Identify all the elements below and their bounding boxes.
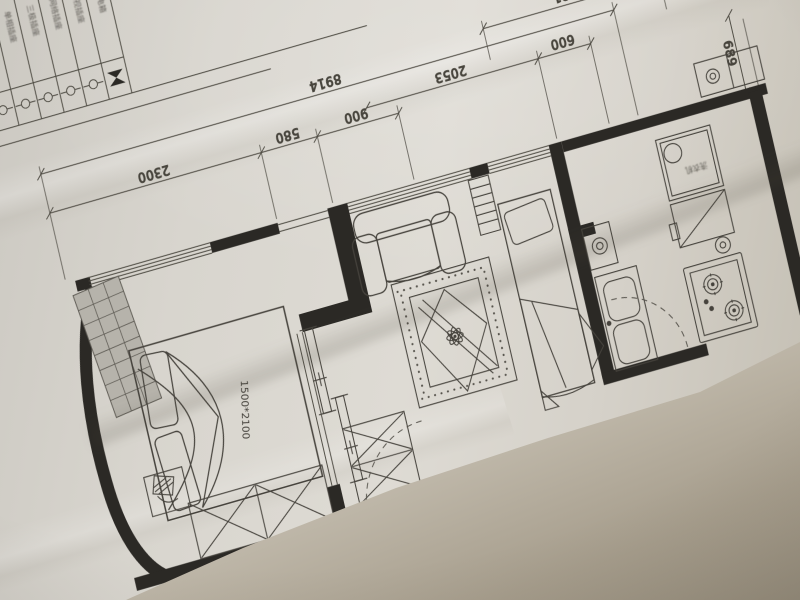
dimension-annotations: 8914 2300 580 900 2053 600 1981 689 <box>28 0 761 296</box>
legend-item-label: 网络插座 <box>48 0 65 31</box>
washing-machine-label: 洗衣机 <box>684 160 708 176</box>
balcony-door <box>278 211 329 232</box>
pillow <box>503 197 554 246</box>
legend-item-label: 三极插座 <box>25 3 42 37</box>
dim-580: 580 <box>274 124 301 146</box>
flower-motif <box>445 325 465 347</box>
legend-item-label: 单相插座 <box>3 10 20 44</box>
dim-overall: 8914 <box>308 71 343 95</box>
burner-icon <box>722 297 747 324</box>
floor-plan-photo: 单相插座 三极插座 网络插座 电视插座 配电箱 8914 <box>0 0 800 600</box>
round-fixture <box>714 235 732 255</box>
gas-stove <box>683 252 758 343</box>
ac-radiator <box>468 175 500 235</box>
burner-icon <box>700 271 725 298</box>
legend-item-label: 电视插座 <box>70 0 87 25</box>
legend-item-label: 配电箱 <box>94 0 109 14</box>
living-window <box>347 168 471 213</box>
distribution-box-icon <box>107 69 126 87</box>
dim-600: 600 <box>549 31 576 53</box>
dim-900: 900 <box>342 105 369 127</box>
bedroom2-window <box>487 146 551 174</box>
dim-2053: 2053 <box>433 62 468 86</box>
dim-2300: 2300 <box>136 162 171 186</box>
blanket <box>520 284 596 401</box>
